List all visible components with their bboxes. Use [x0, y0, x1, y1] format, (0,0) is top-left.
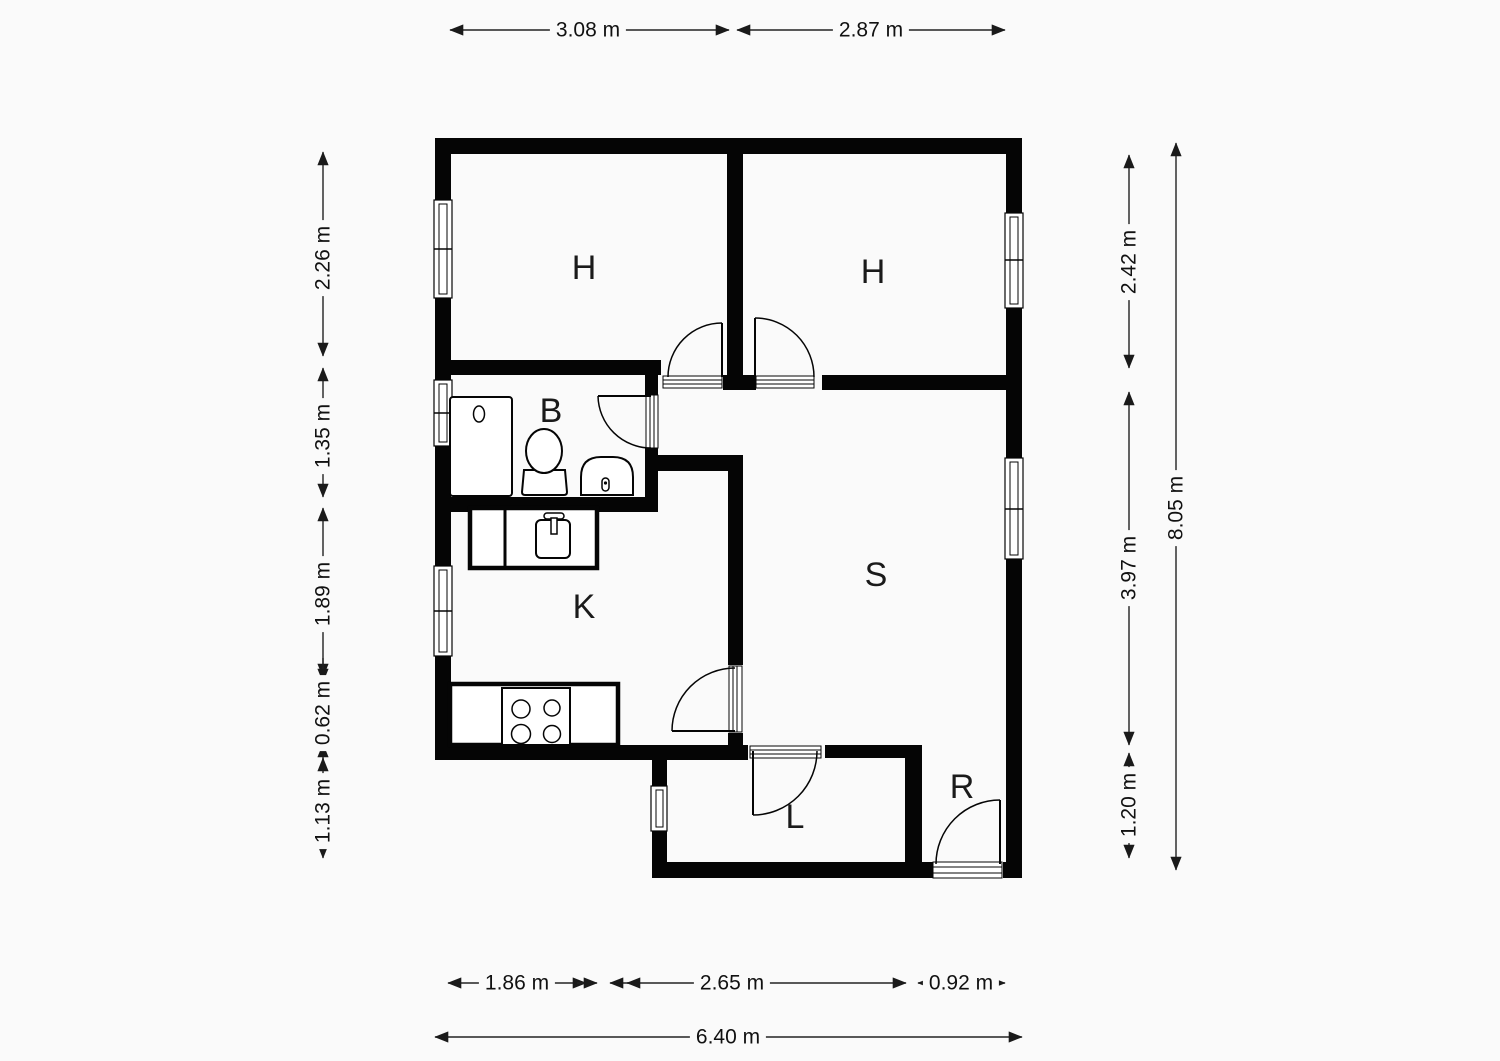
- door-arc: [755, 318, 814, 377]
- door-kitchen: [672, 668, 735, 731]
- window-living-room: [1005, 458, 1023, 559]
- door-opening-kitchen: [729, 666, 742, 732]
- wall-segment: [822, 375, 1006, 390]
- window-bedroom-left: [434, 200, 452, 298]
- door-bedroom-left: [668, 323, 722, 377]
- window-bedroom-right: [1005, 213, 1023, 308]
- room-label-entry: R: [950, 770, 975, 804]
- bathtub: [450, 397, 512, 496]
- door-arc: [598, 396, 651, 448]
- dimension-label-top-left: 3.08 m: [550, 20, 626, 41]
- door-opening-bedroom-left: [663, 376, 722, 388]
- window-kitchen: [434, 566, 452, 656]
- kitchen-sink: [470, 508, 597, 568]
- wall-segment: [645, 375, 658, 395]
- room-label-bathroom: B: [540, 394, 563, 428]
- wall-segment: [728, 455, 743, 665]
- dimension-label-right-1: 2.42 m: [1119, 224, 1140, 300]
- toilet: [522, 429, 567, 495]
- door-opening-bathroom: [646, 395, 658, 448]
- door-bathroom: [598, 396, 651, 448]
- room-label-bedroom-right: H: [861, 255, 886, 289]
- dimension-label-right-2: 3.97 m: [1119, 530, 1140, 606]
- door-opening-bedroom-right: [756, 376, 814, 388]
- dimension-label-left-2: 1.35 m: [313, 398, 334, 474]
- wall-segment: [728, 733, 743, 760]
- door-arc: [936, 800, 1000, 864]
- wall-segment: [905, 745, 922, 862]
- dimension-label-bottom-1: 1.86 m: [479, 973, 555, 994]
- door-arc: [672, 668, 735, 731]
- dimension-label-right-3: 1.20 m: [1119, 767, 1140, 843]
- dimension-label-left-1: 2.26 m: [313, 220, 334, 296]
- wall-segment: [652, 862, 933, 878]
- floor-plan-drawing: [0, 0, 1500, 1061]
- room-label-kitchen: K: [573, 590, 596, 624]
- door-opening-entrance: [933, 862, 1002, 878]
- room-label-bedroom-left: H: [572, 251, 597, 285]
- window-hall: [651, 786, 667, 831]
- dimension-label-top-right: 2.87 m: [833, 20, 909, 41]
- door-openings: [646, 376, 1002, 878]
- dimension-label-bottom-2: 2.65 m: [694, 973, 770, 994]
- stove: [450, 684, 618, 745]
- room-label-hall: L: [786, 800, 805, 834]
- bathroom-sink: [581, 457, 633, 495]
- wall-segment: [723, 375, 756, 390]
- fixtures: [450, 397, 633, 745]
- dimension-label-right-total: 8.05 m: [1166, 470, 1187, 546]
- wall-segment: [825, 745, 918, 758]
- dimension-label-left-3: 1.89 m: [313, 556, 334, 632]
- dimension-label-bottom-total: 6.40 m: [690, 1027, 766, 1048]
- door-entrance: [936, 800, 1000, 864]
- wall-segment: [1003, 862, 1022, 878]
- wall-segment: [435, 360, 661, 375]
- dimension-label-bottom-3: 0.92 m: [923, 973, 999, 994]
- room-label-living-room: S: [865, 558, 888, 592]
- door-arc: [668, 323, 722, 377]
- wall-segment: [727, 138, 743, 390]
- dimension-label-left-4: 0.62 m: [313, 675, 334, 751]
- dimension-label-left-5: 1.13 m: [313, 773, 334, 849]
- door-opening-hall: [750, 746, 821, 758]
- floor-plan: H H B K S L R 3.08 m 2.87 m 2.26 m 1.35 …: [0, 0, 1500, 1061]
- door-bedroom-right: [755, 318, 814, 377]
